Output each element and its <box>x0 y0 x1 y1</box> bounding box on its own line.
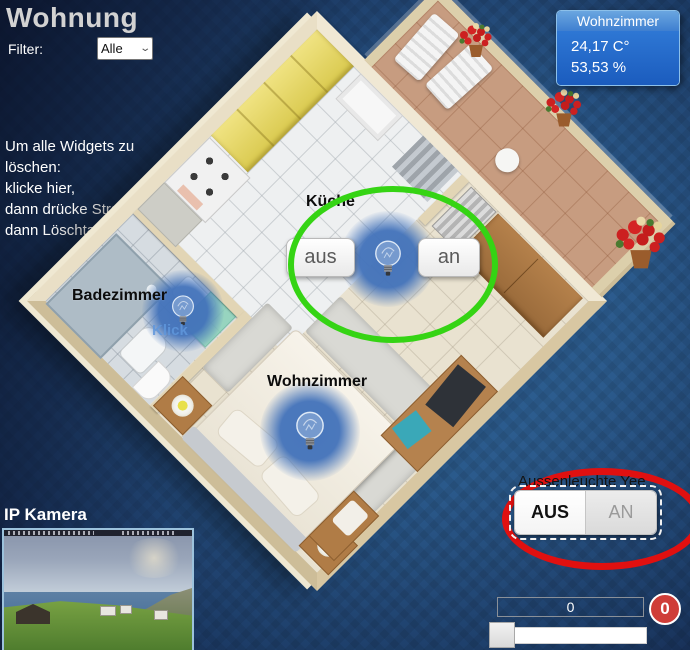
slider-thumb[interactable] <box>489 622 515 648</box>
bathroom-light-toggle[interactable] <box>142 270 224 352</box>
value-badge: 0 <box>649 593 681 625</box>
smart-home-dashboard: Wohnung Filter: Alle ⌄ Um alle Widgets z… <box>0 0 690 650</box>
light-bulb-icon <box>295 410 325 453</box>
outdoor-light-on-button[interactable]: AN <box>585 491 656 534</box>
flower-pot-icon <box>542 86 586 132</box>
filter-label: Filter: <box>8 41 43 57</box>
page-title: Wohnung <box>6 2 138 34</box>
kitchen-on-button[interactable]: an <box>418 238 480 277</box>
kitchen-off-button[interactable]: aus <box>286 238 355 277</box>
camera-label: IP Kamera <box>4 505 87 525</box>
filter-selected-value: Alle <box>101 41 123 56</box>
value-input[interactable] <box>497 597 644 617</box>
camera-timestamp-bar <box>4 530 192 536</box>
kitchen-label: Küche <box>306 193 355 211</box>
chevron-down-icon: ⌄ <box>139 43 151 54</box>
bathroom-label: Badezimmer <box>72 287 167 305</box>
living-room-light-toggle[interactable] <box>260 381 360 481</box>
sensor-panel: Wohnzimmer 24,17 C° 53,53 % <box>556 10 680 86</box>
filter-dropdown[interactable]: Alle ⌄ <box>97 37 153 60</box>
outdoor-light-switch: AUS AN <box>514 490 657 535</box>
balcony-table <box>490 143 524 177</box>
sun-glow <box>124 538 184 578</box>
humidity-value: 53,53 % <box>571 57 679 78</box>
slider-track[interactable] <box>494 627 647 644</box>
outdoor-light-label: Aussenleuchte Yee <box>518 473 646 490</box>
house <box>154 610 168 620</box>
light-bulb-icon <box>374 239 402 279</box>
house <box>120 605 132 614</box>
flower-pot-icon <box>610 212 672 276</box>
outdoor-light-off-button[interactable]: AUS <box>515 491 585 534</box>
living-room-label: Wohnzimmer <box>267 373 367 391</box>
sensor-panel-title: Wohnzimmer <box>557 11 679 31</box>
house <box>100 606 116 616</box>
bathroom-click-hint: Klick <box>152 322 188 339</box>
flower-pot-icon <box>456 20 496 62</box>
camera-feed[interactable] <box>2 528 194 650</box>
temperature-value: 24,17 C° <box>571 36 679 57</box>
